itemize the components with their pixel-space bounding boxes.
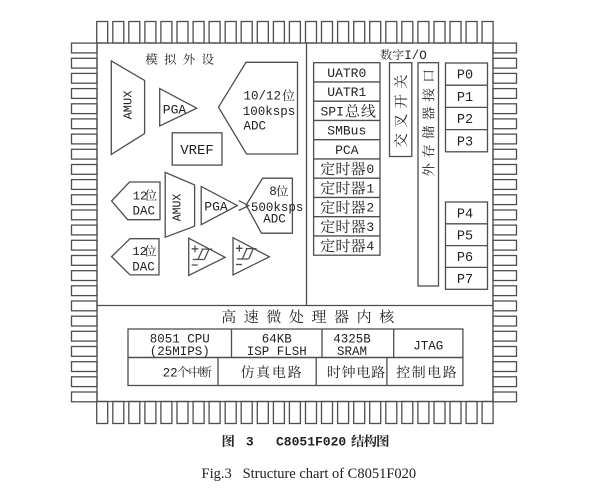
- svg-text:P2: P2: [457, 113, 473, 128]
- svg-text:C8051F020: C8051F020: [276, 434, 346, 449]
- svg-text:3: 3: [246, 434, 254, 449]
- svg-text:P1: P1: [457, 91, 473, 106]
- svg-text:DAC: DAC: [132, 261, 155, 275]
- svg-text:(25MIPS): (25MIPS): [150, 345, 210, 359]
- svg-text:SPI: SPI: [321, 104, 344, 119]
- svg-text:1: 1: [366, 181, 374, 196]
- svg-text:VREF: VREF: [180, 143, 214, 159]
- svg-text:UATR0: UATR0: [327, 66, 366, 81]
- svg-text:12: 12: [132, 245, 146, 259]
- svg-text:ADC: ADC: [244, 119, 267, 133]
- svg-text:DAC: DAC: [133, 205, 156, 219]
- svg-text:8: 8: [269, 185, 277, 199]
- svg-text:ISP FLSH: ISP FLSH: [247, 345, 307, 359]
- svg-text:100ksps: 100ksps: [243, 105, 296, 119]
- svg-text:SRAM: SRAM: [337, 345, 367, 359]
- svg-text:JTAG: JTAG: [413, 340, 443, 354]
- svg-text:3: 3: [366, 220, 374, 235]
- svg-text:UATR1: UATR1: [327, 85, 366, 100]
- svg-text:PGA: PGA: [163, 103, 187, 118]
- svg-text:P7: P7: [457, 273, 473, 288]
- svg-text:0: 0: [366, 162, 374, 177]
- svg-text:22: 22: [163, 366, 178, 380]
- svg-text:PCA: PCA: [335, 143, 359, 158]
- svg-text:4: 4: [366, 239, 374, 254]
- svg-text:P4: P4: [457, 208, 473, 223]
- svg-text:SMBus: SMBus: [327, 124, 366, 139]
- svg-text:AMUX: AMUX: [172, 194, 185, 222]
- svg-text:I/O: I/O: [404, 49, 427, 63]
- svg-text:Fig.3 Structure chart of C80: Fig.3 Structure chart of C8051F020: [202, 466, 417, 482]
- svg-text:P5: P5: [457, 229, 473, 244]
- svg-text:2: 2: [366, 201, 374, 216]
- svg-text:P0: P0: [457, 69, 473, 84]
- svg-text:10/12: 10/12: [244, 90, 282, 104]
- svg-text:AMUX: AMUX: [122, 91, 136, 120]
- svg-text:12: 12: [133, 190, 147, 204]
- svg-text:ADC: ADC: [263, 212, 286, 226]
- svg-text:P3: P3: [457, 135, 473, 150]
- svg-text:PGA: PGA: [204, 200, 228, 215]
- svg-text:P6: P6: [457, 251, 473, 266]
